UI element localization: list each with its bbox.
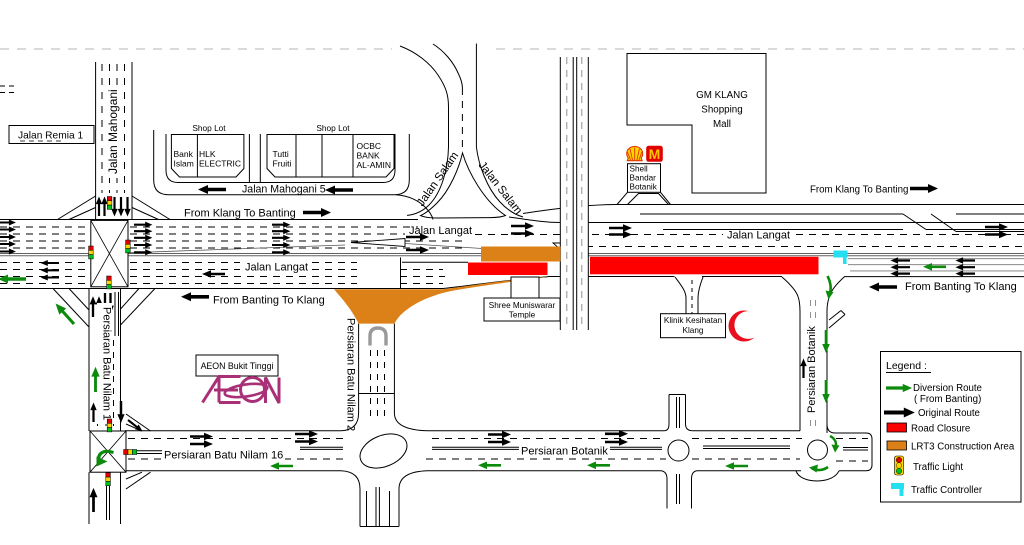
svg-text:GM KLANG: GM KLANG <box>696 90 748 101</box>
svg-text:Original Route: Original Route <box>918 408 980 419</box>
svg-text:Klang: Klang <box>683 326 704 335</box>
svg-text:( From Banting): ( From Banting) <box>914 394 981 405</box>
svg-text:Tutti: Tutti <box>273 149 289 159</box>
svg-text:Shree Muniswarar: Shree Muniswarar <box>489 301 556 310</box>
svg-text:Persiaran Batu Nilam 1: Persiaran Batu Nilam 1 <box>100 307 112 420</box>
svg-text:Shopping: Shopping <box>701 105 742 116</box>
svg-text:M: M <box>649 146 661 162</box>
svg-text:Legend :: Legend : <box>886 360 927 372</box>
svg-text:Shop Lot: Shop Lot <box>316 123 350 133</box>
svg-text:AEON Bukit Tinggi: AEON Bukit Tinggi <box>201 361 274 371</box>
svg-text:Klinik Kesihatan: Klinik Kesihatan <box>664 316 723 325</box>
svg-text:Traffic Light: Traffic Light <box>913 462 963 473</box>
svg-text:From Klang To Banting: From Klang To Banting <box>810 185 908 196</box>
svg-text:OCBC: OCBC <box>357 141 382 151</box>
svg-text:Persiaran Batu Nilam 16: Persiaran Batu Nilam 16 <box>164 450 283 462</box>
svg-text:From Banting To Klang: From Banting To Klang <box>905 281 1017 293</box>
svg-text:ELECTRIC: ELECTRIC <box>199 159 241 169</box>
svg-text:Shell: Shell <box>630 165 648 174</box>
svg-text:Bank: Bank <box>174 149 194 159</box>
svg-text:From Klang To Banting: From Klang To Banting <box>184 208 296 220</box>
svg-text:Diversion Route: Diversion Route <box>913 383 982 394</box>
svg-text:Islam: Islam <box>174 159 194 169</box>
svg-text:Jalan Langat: Jalan Langat <box>245 262 308 274</box>
svg-text:BANK: BANK <box>357 151 380 161</box>
svg-text:Fruiti: Fruiti <box>273 159 292 169</box>
svg-text:Jalan Langat: Jalan Langat <box>727 230 790 242</box>
svg-text:Traffic Controller: Traffic Controller <box>911 485 983 496</box>
svg-text:Jalan Mahogani 5: Jalan Mahogani 5 <box>242 184 326 196</box>
svg-text:Shop Lot: Shop Lot <box>192 123 226 133</box>
svg-text:Bandar: Bandar <box>630 174 657 183</box>
svg-text:HLK: HLK <box>199 149 216 159</box>
svg-text:From Banting To Klang: From Banting To Klang <box>213 295 325 307</box>
svg-text:Mall: Mall <box>713 119 731 130</box>
svg-text:Jalan Remia 1: Jalan Remia 1 <box>18 131 83 142</box>
svg-text:Road Closure: Road Closure <box>911 424 970 435</box>
svg-text:Jalan Langat: Jalan Langat <box>409 225 472 237</box>
svg-text:LRT3 Construction Area: LRT3 Construction Area <box>911 442 1015 453</box>
svg-text:Persiaran Batu Nilam 2: Persiaran Batu Nilam 2 <box>344 318 356 431</box>
svg-text:Temple: Temple <box>509 311 536 320</box>
svg-text:Persiaran Botanik: Persiaran Botanik <box>806 326 818 413</box>
svg-text:Persiaran Botanik: Persiaran Botanik <box>521 446 608 458</box>
svg-text:Jalan Mahogani: Jalan Mahogani <box>106 89 120 174</box>
svg-text:AL-AMIN: AL-AMIN <box>357 160 391 170</box>
svg-text:Botanik: Botanik <box>630 183 658 192</box>
